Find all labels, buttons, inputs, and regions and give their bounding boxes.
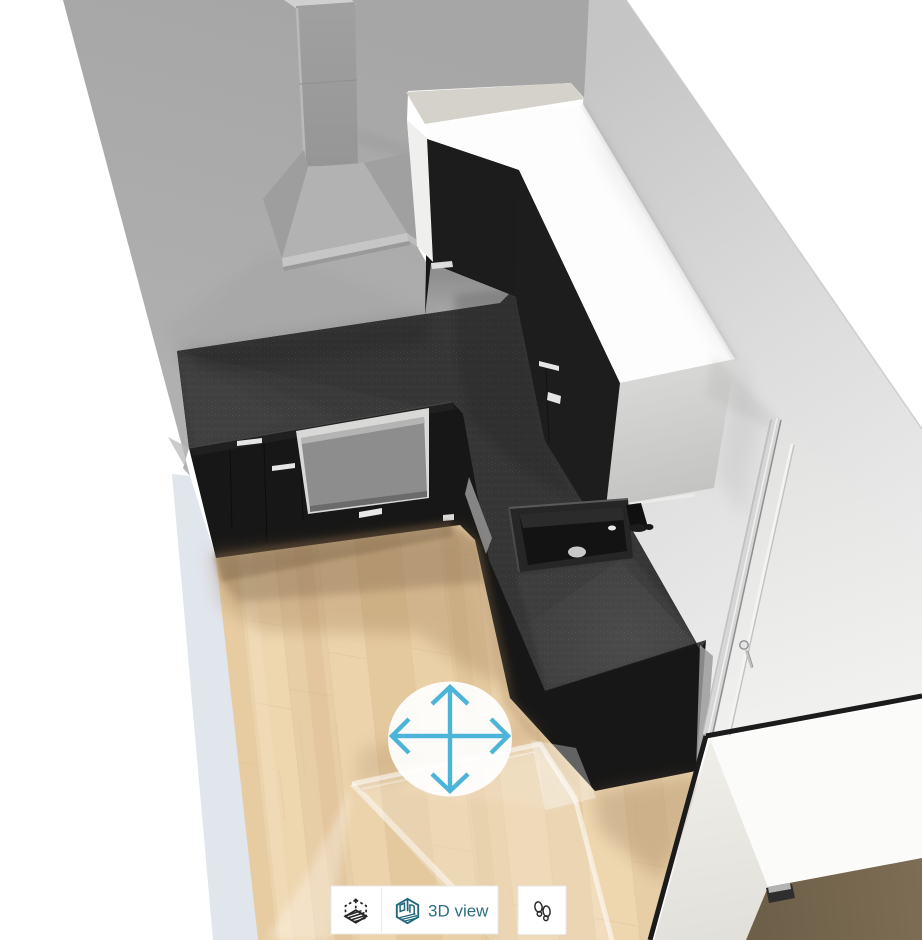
svg-text:3D view: 3D view <box>428 902 489 921</box>
